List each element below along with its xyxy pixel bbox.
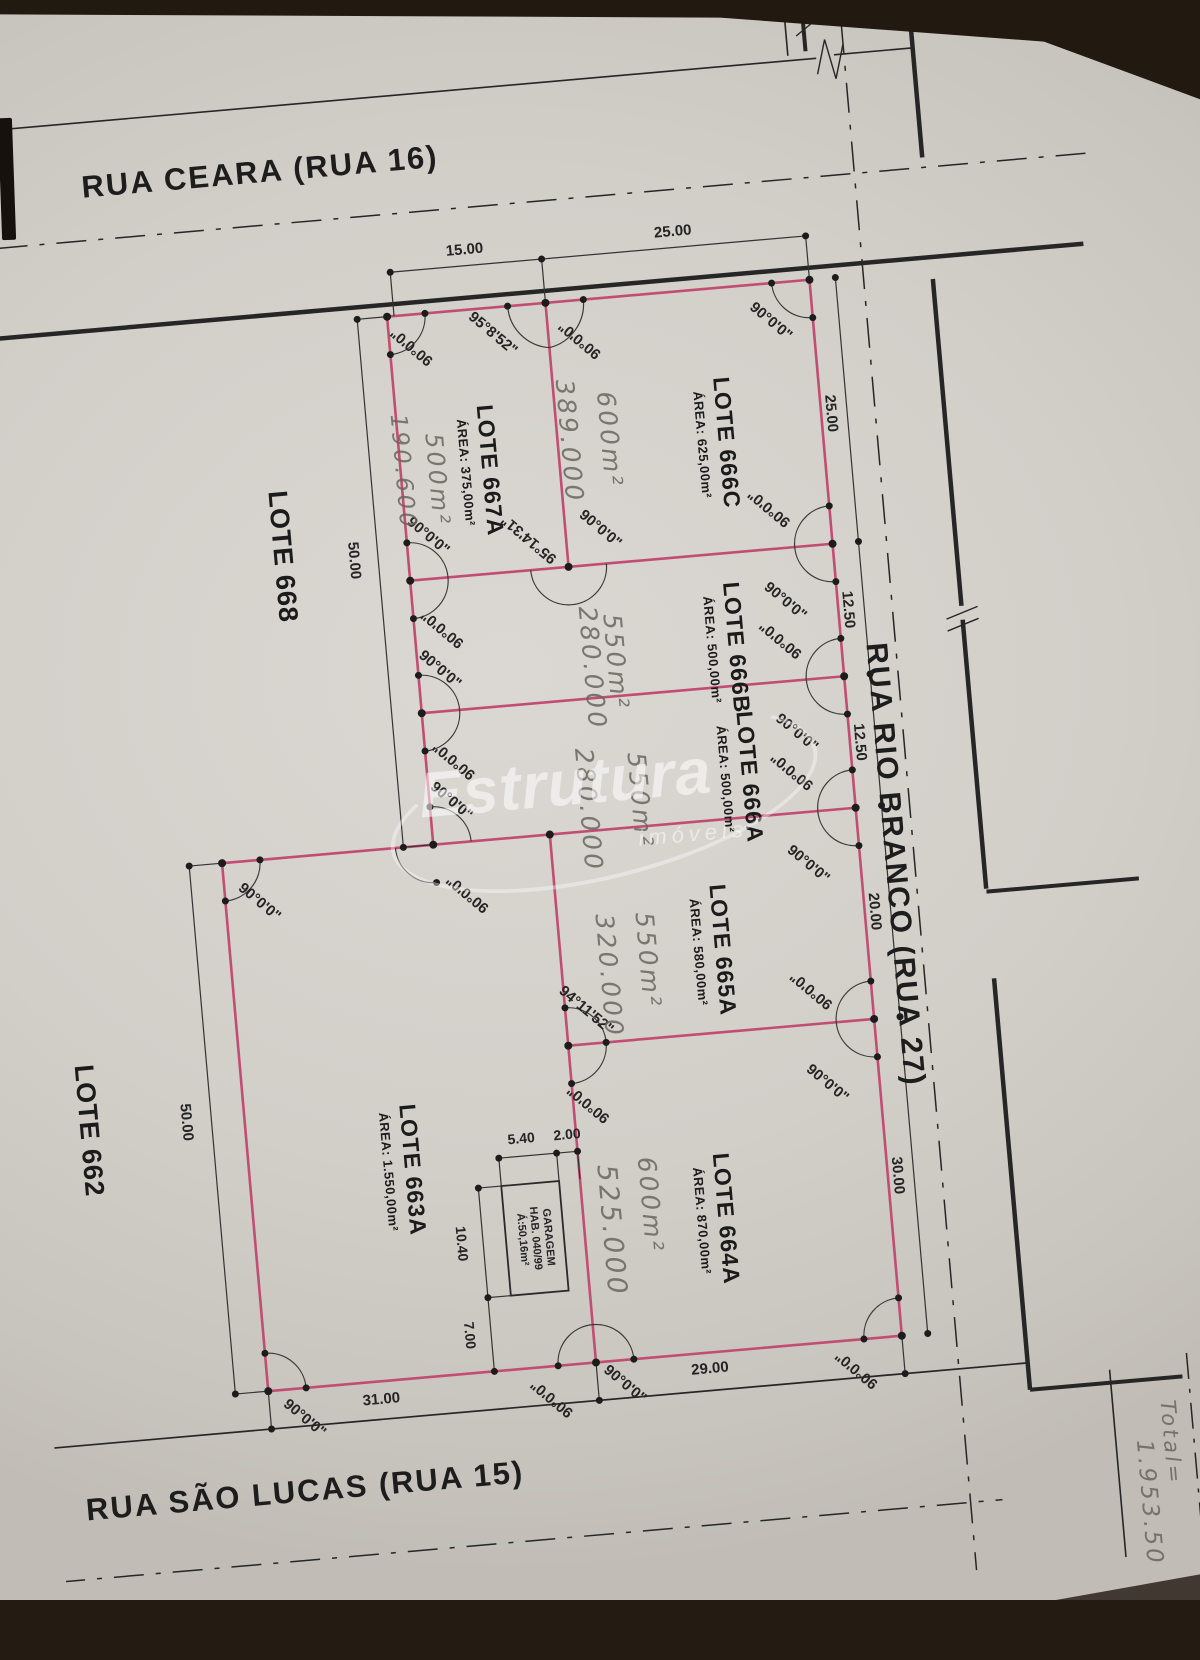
riobranco-west-curb-north <box>775 0 788 56</box>
dimension-label: 12.50 <box>850 723 870 762</box>
dimension-label: 5.40 <box>507 1129 536 1147</box>
line-break-symbol <box>815 38 846 80</box>
dimension-label: 25.00 <box>653 221 692 241</box>
photo-of-lot-plan: { "streets": { "top": "RUA CEARA (RUA 16… <box>0 0 1200 1600</box>
dimension-label: 25.00 <box>821 394 841 433</box>
right-lower-centerline <box>1186 1353 1200 1570</box>
scanned-paper-sheet: RUA CEARA (RUA 16) RUA SÃO LUCAS (RUA 15… <box>0 0 1200 1600</box>
dimension-label: 20.00 <box>865 892 885 931</box>
garage-annotation: GARAGEM HAB. 040/99 Á:50,16m² <box>513 1205 557 1272</box>
riobranco-east-curb <box>900 0 1030 1390</box>
dimension-label: 12.50 <box>838 590 858 629</box>
dimension-label: 10.40 <box>453 1226 472 1262</box>
lot-subdivision-plan: RUA CEARA (RUA 16) RUA SÃO LUCAS (RUA 15… <box>0 0 1200 1649</box>
dimension-label: 29.00 <box>691 1358 730 1378</box>
dimension-label: 15.00 <box>445 240 484 260</box>
dimension-label: 7.00 <box>461 1321 479 1350</box>
dimension-label: 31.00 <box>362 1389 401 1409</box>
dimension-label: 50.00 <box>344 541 364 580</box>
dimension-label: 30.00 <box>888 1156 908 1195</box>
dimension-label: 2.00 <box>553 1125 582 1143</box>
side-street-stub-2 <box>1030 1376 1182 1389</box>
side-street-stub-1 <box>986 878 1138 891</box>
ceara-north-curb <box>0 48 911 141</box>
dimension-label: 50.00 <box>176 1103 196 1142</box>
right-lower-line <box>1110 1370 1128 1577</box>
